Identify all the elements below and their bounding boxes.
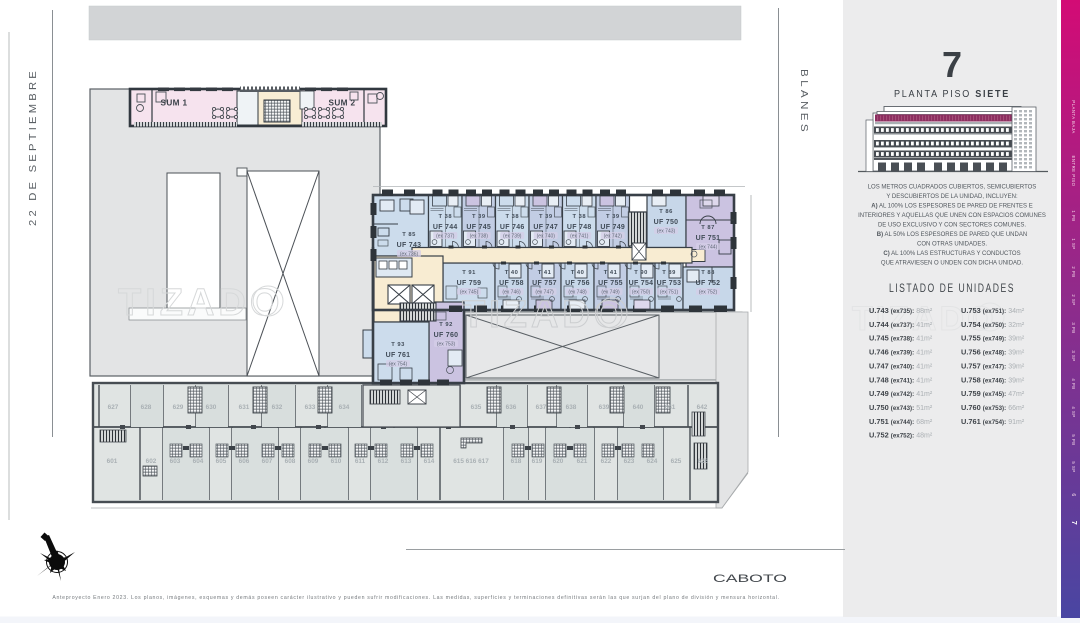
svg-text:605: 605 xyxy=(216,458,227,465)
svg-text:DE USO EXCLUSIVO Y CON SECTORE: DE USO EXCLUSIVO Y CON SECTORES COMUNES. xyxy=(878,223,1026,229)
svg-text:UF 758: UF 758 xyxy=(499,280,524,287)
svg-text:7: 7 xyxy=(942,44,962,85)
svg-text:TIZADO: TIZADO xyxy=(118,282,283,324)
svg-text:610: 610 xyxy=(331,458,342,465)
svg-text:638: 638 xyxy=(566,404,577,411)
svg-text:B) AL 50% LOS ESPESORES DE PAR: B) AL 50% LOS ESPESORES DE PARED QUE UND… xyxy=(877,232,1027,238)
svg-text:642: 642 xyxy=(697,404,708,411)
svg-text:641: 641 xyxy=(665,404,676,411)
svg-text:U.750 (ex743): 51m²: U.750 (ex743): 51m² xyxy=(869,403,933,412)
svg-text:2 PB: 2 PB xyxy=(1071,266,1076,277)
svg-text:608: 608 xyxy=(285,458,296,465)
svg-text:614: 614 xyxy=(424,458,435,465)
svg-text:A) AL 100% LOS ESPESORES DE PA: A) AL 100% LOS ESPESORES DE PARED DE FRE… xyxy=(871,204,1032,210)
svg-text:U.754 (ex750): 32m²: U.754 (ex750): 32m² xyxy=(961,320,1025,329)
svg-text:5 SP: 5 SP xyxy=(1071,461,1076,472)
svg-text:ENTRE PISO: ENTRE PISO xyxy=(1071,155,1076,186)
svg-text:4 SP: 4 SP xyxy=(1071,406,1076,417)
svg-text:621: 621 xyxy=(577,458,588,465)
svg-text:624: 624 xyxy=(647,458,658,465)
svg-text:620: 620 xyxy=(553,458,564,465)
svg-text:BLANES: BLANES xyxy=(798,69,810,135)
svg-text:T 86: T 86 xyxy=(659,209,673,215)
svg-text:T 38: T 38 xyxy=(505,214,519,220)
svg-text:(ex 750): (ex 750) xyxy=(632,290,651,296)
svg-text:640: 640 xyxy=(633,404,644,411)
svg-text:T 93: T 93 xyxy=(391,342,405,348)
svg-text:UF 750: UF 750 xyxy=(654,219,679,226)
svg-text:UF 754: UF 754 xyxy=(629,280,654,287)
svg-text:PLANTA PISO SIETE: PLANTA PISO SIETE xyxy=(894,88,1010,100)
svg-text:C) AL 100% LAS ESTRUCTURAS Y C: C) AL 100% LAS ESTRUCTURAS Y CONDUCTOS xyxy=(883,251,1020,257)
svg-text:U.755 (ex749): 39m²: U.755 (ex749): 39m² xyxy=(961,334,1025,343)
svg-text:UF 747: UF 747 xyxy=(533,224,558,231)
svg-text:PLANTA BAJA: PLANTA BAJA xyxy=(1071,100,1076,134)
svg-text:603: 603 xyxy=(170,458,181,465)
svg-text:T 41: T 41 xyxy=(538,270,552,276)
svg-text:628: 628 xyxy=(141,404,152,411)
svg-text:636: 636 xyxy=(506,404,517,411)
svg-text:(ex 752): (ex 752) xyxy=(699,290,718,296)
svg-text:4 PB: 4 PB xyxy=(1071,378,1076,389)
svg-text:U.760 (ex753): 66m²: U.760 (ex753): 66m² xyxy=(961,403,1025,412)
svg-text:UF 751: UF 751 xyxy=(696,235,721,242)
svg-text:(ex 740): (ex 740) xyxy=(537,234,556,240)
svg-text:T 91: T 91 xyxy=(462,270,476,276)
svg-text:CABOTO: CABOTO xyxy=(713,573,788,585)
svg-text:(ex 754): (ex 754) xyxy=(389,362,408,368)
svg-text:U.747 (ex740): 41m²: U.747 (ex740): 41m² xyxy=(869,361,933,370)
svg-text:UF 756: UF 756 xyxy=(565,280,590,287)
svg-text:639: 639 xyxy=(599,404,610,411)
svg-text:(ex 742): (ex 742) xyxy=(604,234,623,240)
svg-text:QUE ATRAVIESEN O UNDEN CON DIC: QUE ATRAVIESEN O UNDEN CON DICHA UNIDAD. xyxy=(881,261,1023,267)
svg-text:U.744 (ex737): 41m²: U.744 (ex737): 41m² xyxy=(869,320,933,329)
svg-text:UF 744: UF 744 xyxy=(433,224,458,231)
svg-text:(ex 753): (ex 753) xyxy=(437,342,456,348)
svg-text:5 PB: 5 PB xyxy=(1071,434,1076,445)
svg-text:U.751 (ex744): 68m²: U.751 (ex744): 68m² xyxy=(869,417,933,426)
svg-text:T 90: T 90 xyxy=(634,270,648,276)
svg-text:601: 601 xyxy=(107,458,118,465)
svg-text:(ex 751): (ex 751) xyxy=(660,290,679,296)
svg-text:U.746 (ex739): 41m²: U.746 (ex739): 41m² xyxy=(869,348,933,357)
svg-text:UF 752: UF 752 xyxy=(696,280,721,287)
svg-text:619: 619 xyxy=(532,458,543,465)
svg-text:TIZADO: TIZADO xyxy=(462,294,627,336)
svg-text:634: 634 xyxy=(339,404,350,411)
svg-text:T 40: T 40 xyxy=(571,270,585,276)
svg-text:T 85: T 85 xyxy=(402,232,416,238)
svg-text:U.749 (ex742): 41m²: U.749 (ex742): 41m² xyxy=(869,389,933,398)
svg-text:635: 635 xyxy=(471,404,482,411)
svg-text:U.759 (ex745): 47m²: U.759 (ex745): 47m² xyxy=(961,389,1025,398)
svg-text:U.753 (ex751): 34m²: U.753 (ex751): 34m² xyxy=(961,306,1025,315)
svg-text:U.745 (ex738): 41m²: U.745 (ex738): 41m² xyxy=(869,334,933,343)
svg-text:625: 625 xyxy=(671,458,682,465)
svg-text:T 87: T 87 xyxy=(701,225,715,231)
svg-text:632: 632 xyxy=(272,404,283,411)
svg-text:UF 761: UF 761 xyxy=(386,352,411,359)
svg-text:1 SP: 1 SP xyxy=(1071,238,1076,249)
svg-text:CON OTRAS UNIDADES.: CON OTRAS UNIDADES. xyxy=(917,242,987,248)
svg-text:T 39: T 39 xyxy=(606,214,620,220)
svg-text:T 39: T 39 xyxy=(539,214,553,220)
svg-text:2 SP: 2 SP xyxy=(1071,294,1076,305)
svg-text:633: 633 xyxy=(305,404,316,411)
svg-text:U.743 (ex735): 88m²: U.743 (ex735): 88m² xyxy=(869,306,933,315)
svg-text:611: 611 xyxy=(355,458,366,465)
svg-text:602: 602 xyxy=(146,458,157,465)
svg-text:LOS METROS CUADRADOS CUBIERTOS: LOS METROS CUADRADOS CUBIERTOS, SEMICUBI… xyxy=(868,185,1037,191)
svg-text:612: 612 xyxy=(378,458,389,465)
svg-text:3 SP: 3 SP xyxy=(1071,350,1076,361)
svg-text:623: 623 xyxy=(624,458,635,465)
svg-text:609: 609 xyxy=(308,458,319,465)
svg-text:U.752 (ex752): 48m²: U.752 (ex752): 48m² xyxy=(869,431,933,440)
svg-text:615 616 617: 615 616 617 xyxy=(453,458,489,465)
svg-text:U.748 (ex741): 41m²: U.748 (ex741): 41m² xyxy=(869,375,933,384)
svg-text:(ex 738): (ex 738) xyxy=(470,234,489,240)
svg-text:622: 622 xyxy=(601,458,612,465)
svg-text:637: 637 xyxy=(536,404,547,411)
svg-text:U.756 (ex748): 39m²: U.756 (ex748): 39m² xyxy=(961,348,1025,357)
svg-text:UF 755: UF 755 xyxy=(598,280,623,287)
svg-text:UF 749: UF 749 xyxy=(600,224,625,231)
svg-text:7: 7 xyxy=(1070,521,1079,526)
svg-text:631: 631 xyxy=(239,404,250,411)
svg-text:(ex 743): (ex 743) xyxy=(657,229,676,235)
svg-text:LISTADO DE UNIDADES: LISTADO DE UNIDADES xyxy=(889,283,1015,295)
svg-text:UF 753: UF 753 xyxy=(657,280,682,287)
svg-text:T 39: T 39 xyxy=(472,214,486,220)
svg-text:U.757 (ex747): 39m²: U.757 (ex747): 39m² xyxy=(961,361,1025,370)
svg-text:T 89: T 89 xyxy=(662,270,676,276)
svg-text:T 40: T 40 xyxy=(505,270,519,276)
svg-text:22 DE SEPTIEMBRE: 22 DE SEPTIEMBRE xyxy=(27,68,39,226)
svg-text:SUM 1: SUM 1 xyxy=(160,99,187,108)
svg-text:INTERIORES Y AQUELLAS QUE UNEN: INTERIORES Y AQUELLAS QUE UNEN CON ESPAC… xyxy=(858,213,1046,219)
svg-text:UF 745: UF 745 xyxy=(466,224,491,231)
svg-text:607: 607 xyxy=(262,458,273,465)
svg-text:UF 757: UF 757 xyxy=(532,280,557,287)
svg-text:6: 6 xyxy=(1070,493,1076,496)
svg-text:3 PB: 3 PB xyxy=(1071,322,1076,333)
svg-text:629: 629 xyxy=(173,404,184,411)
svg-text:UF 748: UF 748 xyxy=(567,224,592,231)
svg-text:(ex 737): (ex 737) xyxy=(436,234,455,240)
svg-text:T 92: T 92 xyxy=(439,322,453,328)
svg-text:UF 759: UF 759 xyxy=(457,280,482,287)
svg-text:(ex 736): (ex 736) xyxy=(400,252,419,258)
svg-text:U.758 (ex746): 39m²: U.758 (ex746): 39m² xyxy=(961,375,1025,384)
svg-text:T 38: T 38 xyxy=(572,214,586,220)
svg-text:627: 627 xyxy=(108,404,119,411)
svg-text:630: 630 xyxy=(206,404,217,411)
svg-text:618: 618 xyxy=(511,458,522,465)
svg-text:606: 606 xyxy=(239,458,250,465)
svg-text:UF 746: UF 746 xyxy=(500,224,525,231)
svg-text:613: 613 xyxy=(401,458,412,465)
svg-text:(ex 739): (ex 739) xyxy=(503,234,522,240)
svg-text:T 41: T 41 xyxy=(604,270,618,276)
svg-text:UF 743: UF 743 xyxy=(397,242,422,249)
svg-text:(ex 744): (ex 744) xyxy=(699,245,718,251)
svg-text:1 PB: 1 PB xyxy=(1071,210,1076,221)
svg-text:Y DESCUBIERTOS DE LA UNIDAD, I: Y DESCUBIERTOS DE LA UNIDAD, INCLUYEN: xyxy=(886,194,1018,200)
svg-text:Anteproyecto Enero 2023. Los p: Anteproyecto Enero 2023. Los planos, imá… xyxy=(52,595,779,601)
svg-text:626: 626 xyxy=(698,458,709,465)
svg-text:604: 604 xyxy=(193,458,204,465)
svg-text:(ex 741): (ex 741) xyxy=(570,234,589,240)
svg-text:UF 760: UF 760 xyxy=(434,332,459,339)
svg-text:T 38: T 38 xyxy=(438,214,452,220)
svg-text:T 88: T 88 xyxy=(701,270,715,276)
svg-text:U.761 (ex754): 91m²: U.761 (ex754): 91m² xyxy=(961,417,1025,426)
